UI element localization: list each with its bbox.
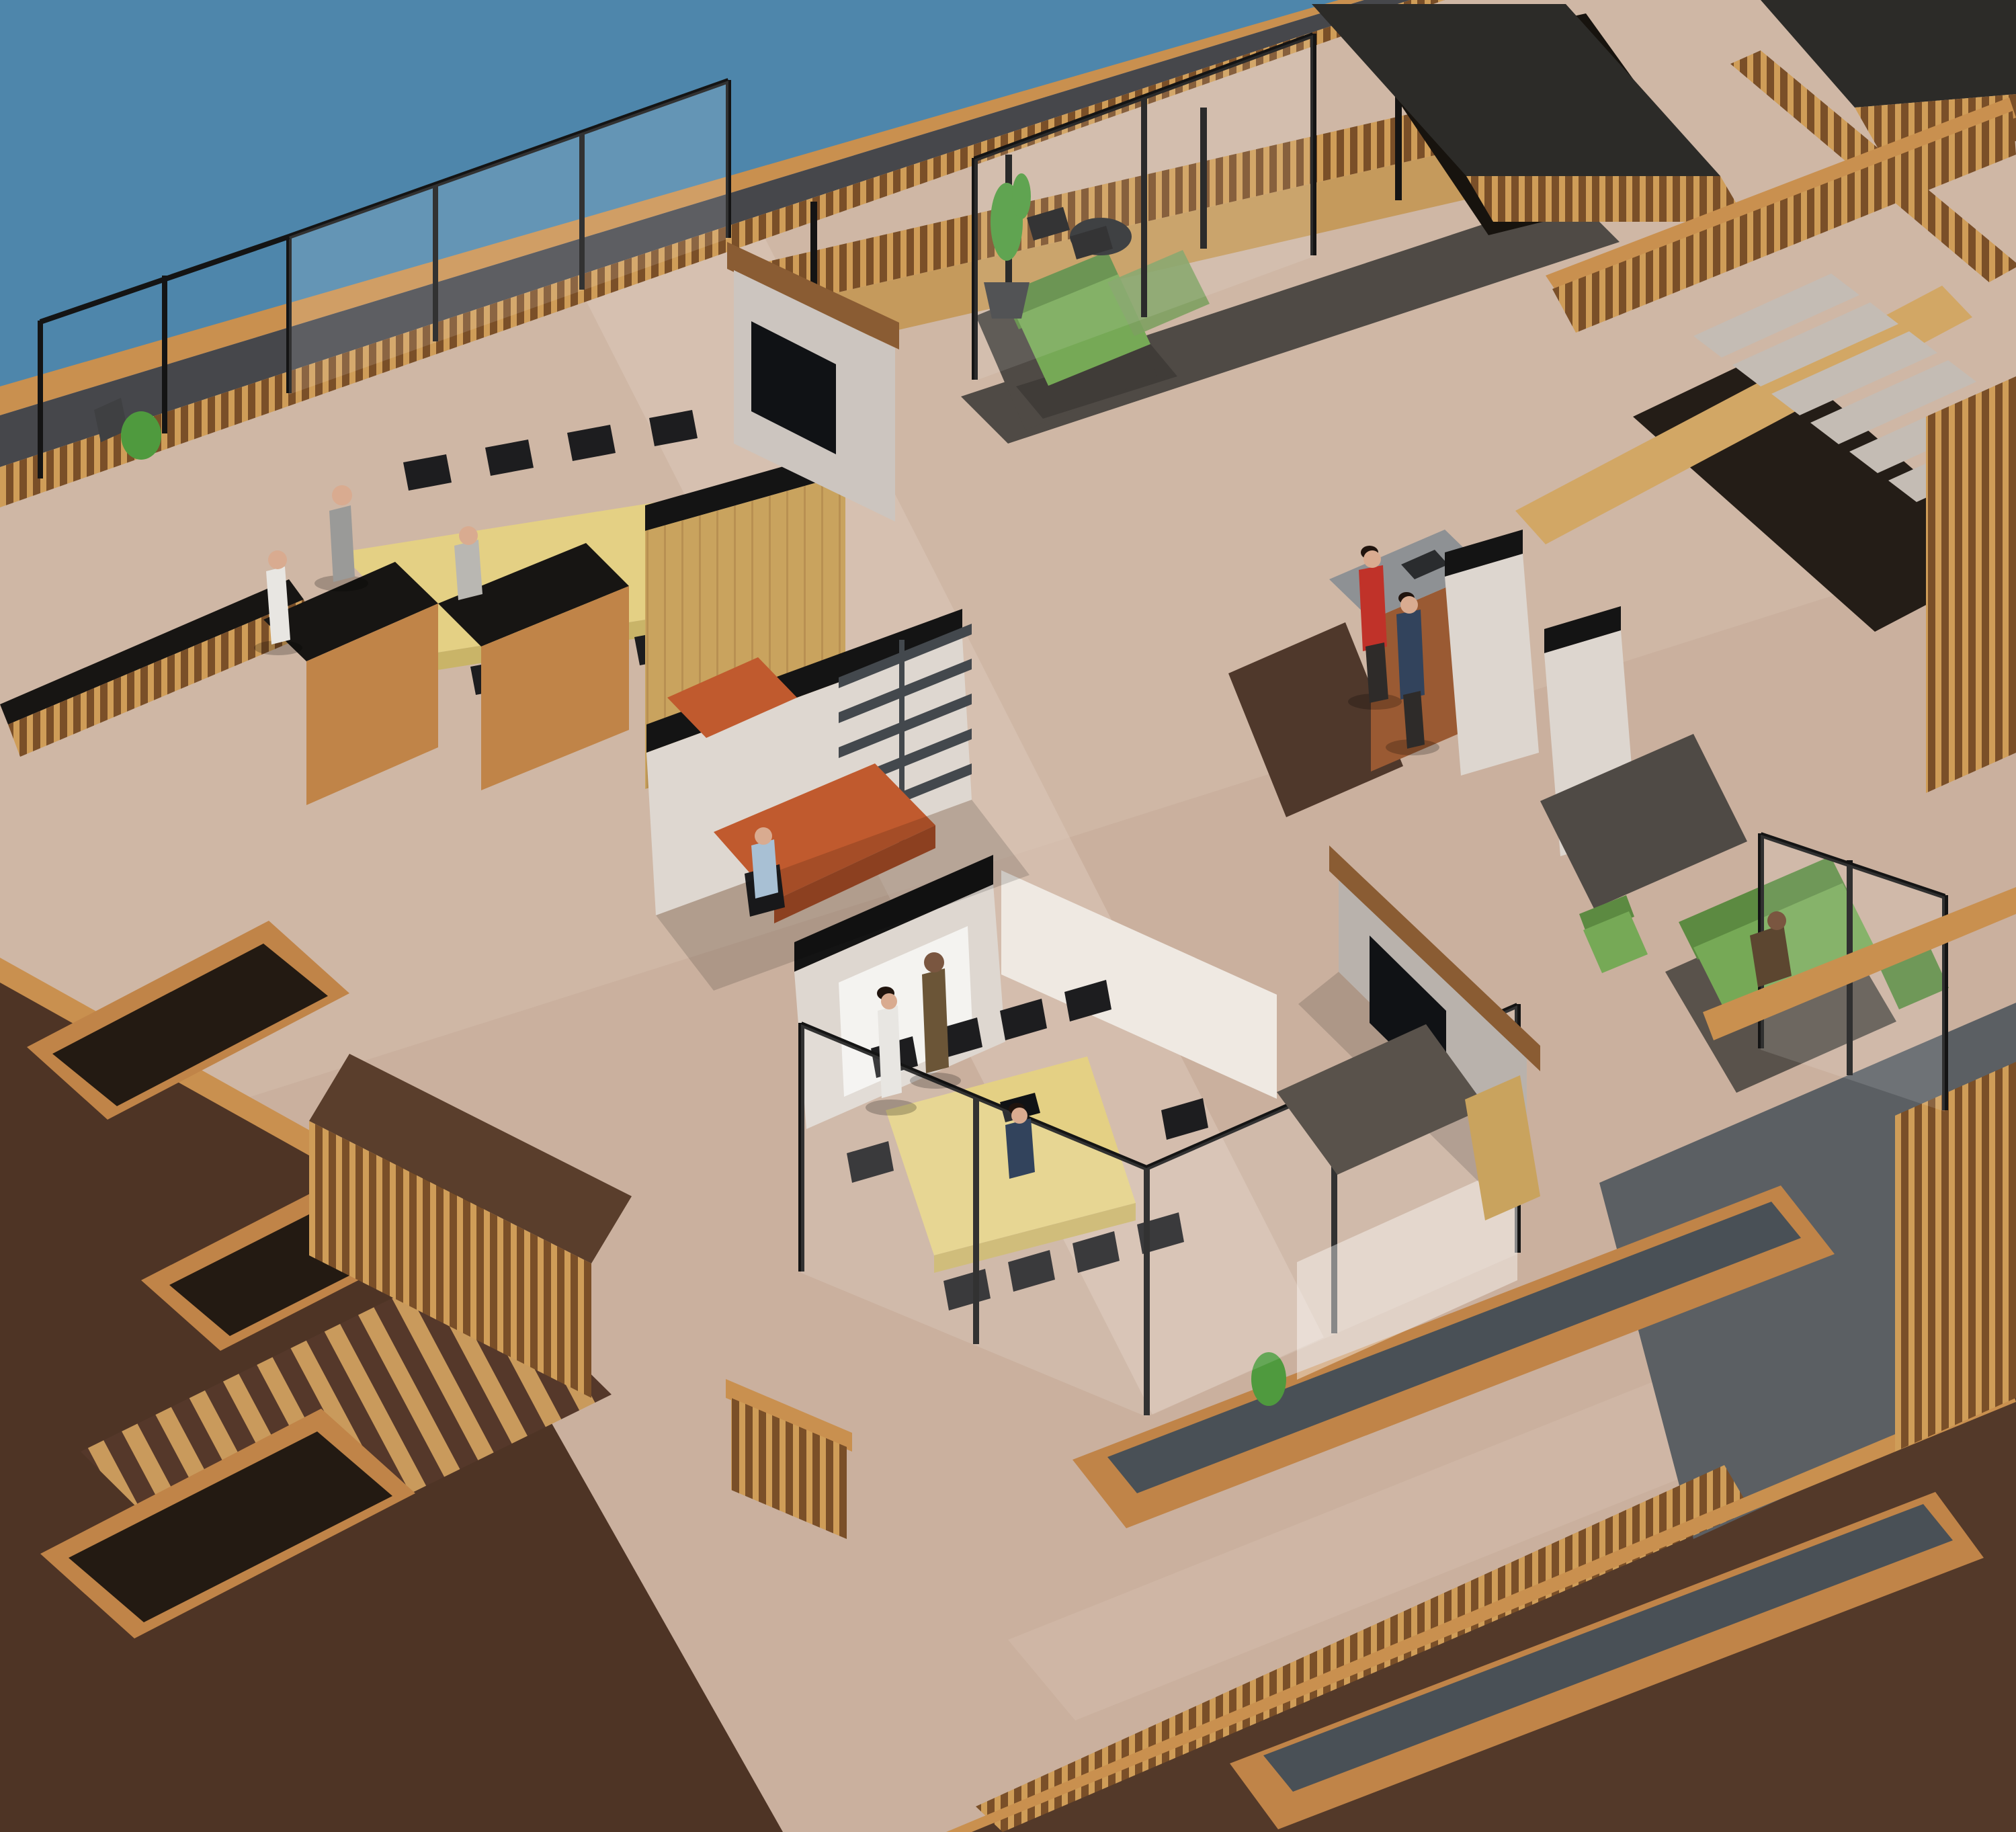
- glass-post: [162, 276, 167, 433]
- person-head: [1363, 550, 1381, 568]
- person-body: [454, 540, 482, 600]
- person-body: [878, 1005, 902, 1098]
- slat-screen-right: [1895, 1062, 2016, 1452]
- person-body: [922, 968, 949, 1073]
- person-body: [1359, 565, 1387, 651]
- glass-post: [38, 321, 43, 478]
- person-shadow: [910, 1073, 961, 1089]
- render-viewport: [0, 0, 2016, 1832]
- person-shadow: [866, 1099, 917, 1116]
- person-head: [332, 485, 352, 505]
- person-body: [751, 839, 778, 899]
- person-legs: [1366, 642, 1388, 703]
- shrub: [121, 411, 161, 460]
- person-body: [329, 505, 355, 582]
- person-head: [881, 993, 897, 1009]
- person-body: [1005, 1118, 1035, 1179]
- person-head: [1767, 911, 1786, 930]
- person-head: [1011, 1108, 1027, 1124]
- slat-screen-right: [1926, 376, 2016, 793]
- person-head: [1400, 596, 1418, 614]
- person-body: [1396, 610, 1425, 700]
- isometric-office-render: [0, 0, 2016, 1832]
- person-head: [268, 550, 287, 569]
- person-head: [755, 827, 772, 845]
- partition-wall: [1445, 554, 1539, 776]
- person-head: [459, 526, 478, 545]
- person-head: [924, 952, 944, 972]
